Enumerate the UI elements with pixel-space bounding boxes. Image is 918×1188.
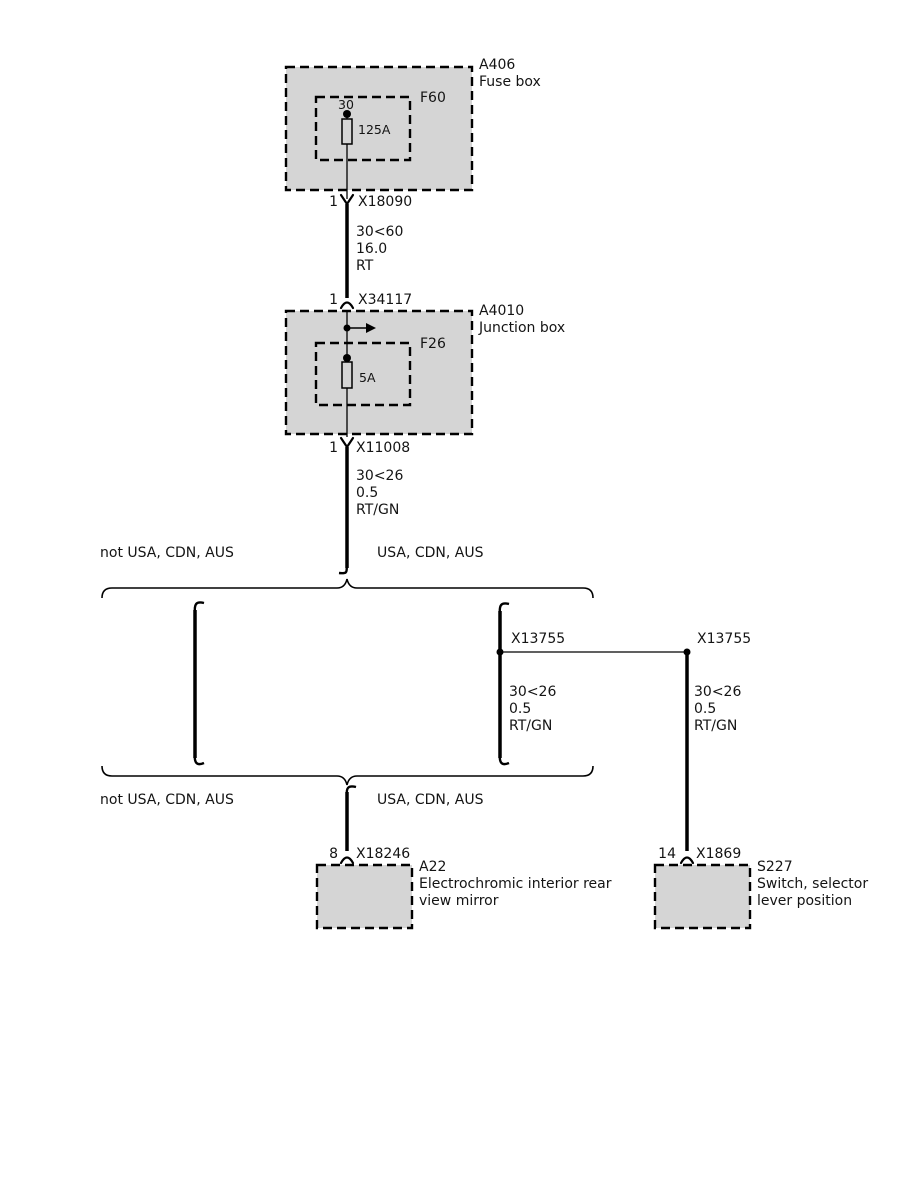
junction-box-id: A4010	[479, 303, 565, 320]
wire-circuit: 30<26	[356, 468, 403, 485]
wire-cross-section: 0.5	[509, 701, 556, 718]
fuse-box-id: A406	[479, 57, 541, 74]
wire-end-curl	[339, 564, 347, 573]
fuse-f26-rating: 5A	[359, 369, 376, 386]
connector-x11008-symbol	[341, 438, 353, 447]
fuse-f60-element	[342, 119, 352, 144]
wire-color-code: RT/GN	[509, 718, 556, 735]
connector-x1869-symbol	[681, 858, 693, 864]
connector-x18246-symbol	[341, 858, 353, 864]
wire-color-code: RT/GN	[694, 718, 741, 735]
switch-id: S227	[757, 859, 869, 876]
connector-x1869-id: X1869	[696, 846, 741, 863]
connector-x34117-pin: 1	[316, 292, 338, 309]
variant-brace-bottom	[102, 766, 593, 785]
connector-x18090-pin: 1	[316, 194, 338, 211]
wire-cross-section: 16.0	[356, 241, 403, 258]
junction-box-name: Junction box	[479, 320, 565, 337]
connector-x34117-id: X34117	[358, 292, 412, 309]
connector-x13755-left-dot	[497, 649, 504, 656]
wire-cross-section: 0.5	[694, 701, 741, 718]
wire-cross-section: 0.5	[356, 485, 403, 502]
diagram-linework	[0, 0, 918, 1188]
fuse-f60-label: F60	[420, 90, 446, 107]
connector-x1869-pin: 14	[654, 846, 676, 863]
switch-box-outline	[655, 865, 750, 928]
switch-label: S227 Switch, selector lever position	[757, 859, 869, 910]
variant-bottom-right-label: USA, CDN, AUS	[377, 792, 484, 809]
fuse-f60-rating: 125A	[358, 121, 390, 138]
variant-top-left-label: not USA, CDN, AUS	[100, 545, 234, 562]
connector-x34117-symbol	[341, 303, 353, 309]
fuse-f26-label: F26	[420, 336, 446, 353]
wire-label-branch-right: 30<26 0.5 RT/GN	[694, 684, 741, 735]
fuse-f26-element	[342, 362, 352, 388]
mirror-label: A22 Electrochromic interior rear view mi…	[419, 859, 614, 910]
connector-x13755-right-dot	[684, 649, 691, 656]
wiring-diagram-page: A406 Fuse box F60 30 125A 1 X18090 30<60…	[0, 0, 918, 1188]
mirror-box-outline	[317, 865, 412, 928]
connector-x11008-id: X11008	[356, 440, 410, 457]
variant-top-right-label: USA, CDN, AUS	[377, 545, 484, 562]
terminal-30-label: 30	[338, 96, 354, 113]
junction-box-outline	[286, 311, 472, 434]
switch-name: Switch, selector lever position	[757, 876, 868, 909]
fuse-box-label: A406 Fuse box	[479, 57, 541, 91]
fuse-box-name: Fuse box	[479, 74, 541, 91]
fuse-f26-dot	[343, 354, 351, 362]
variant-brace-top	[102, 579, 593, 598]
connector-x18246-pin: 8	[316, 846, 338, 863]
junction-box-label: A4010 Junction box	[479, 303, 565, 337]
mirror-id: A22	[419, 859, 614, 876]
connector-x13755-right-id: X13755	[697, 631, 751, 648]
wire-color-code: RT/GN	[356, 502, 403, 519]
connector-x18246-id: X18246	[356, 846, 410, 863]
wire-label-branch-left: 30<26 0.5 RT/GN	[509, 684, 556, 735]
connector-x18090-id: X18090	[358, 194, 412, 211]
wire-circuit: 30<26	[694, 684, 741, 701]
wire-label-main2: 30<26 0.5 RT/GN	[356, 468, 403, 519]
connector-x13755-left-id: X13755	[511, 631, 565, 648]
wire-label-main1: 30<60 16.0 RT	[356, 224, 403, 275]
connector-x11008-pin: 1	[316, 440, 338, 457]
wire-circuit: 30<60	[356, 224, 403, 241]
variant-bottom-left-label: not USA, CDN, AUS	[100, 792, 234, 809]
wire-color-code: RT	[356, 258, 403, 275]
wire-circuit: 30<26	[509, 684, 556, 701]
mirror-name: Electrochromic interior rear view mirror	[419, 876, 612, 909]
